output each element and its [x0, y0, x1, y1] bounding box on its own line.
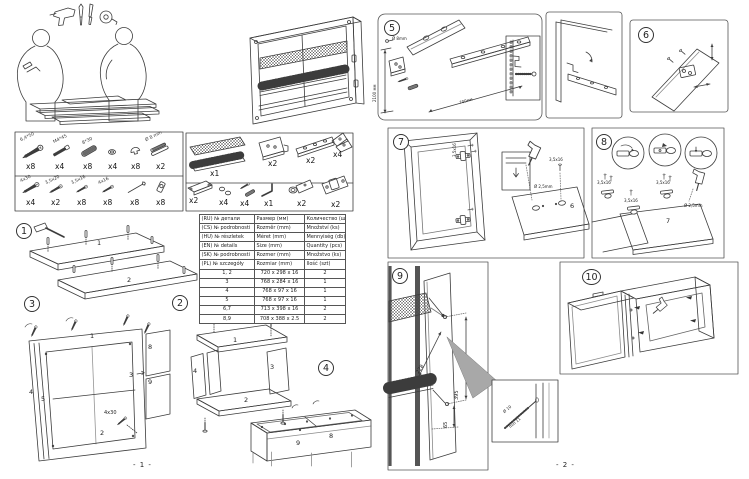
parts-table: (RU) № детали Размер (мм) Количество (шт… — [199, 214, 346, 324]
cell: 713 x 398 x 16 — [255, 305, 305, 314]
step-3-badge: 3 — [24, 296, 40, 312]
table-row: 3 768 x 284 x 16 1 — [200, 278, 346, 287]
cell: Množství (ks) — [305, 224, 346, 233]
part-label: 3 — [129, 372, 133, 379]
screw-size-label: 3,5x16 — [597, 181, 611, 185]
part-label: 4 — [193, 368, 197, 375]
qty-label: x8 — [130, 199, 139, 207]
cell: 2 — [305, 315, 346, 324]
step7-illustration — [388, 128, 589, 258]
step-1-badge: 1 — [16, 223, 32, 239]
screw-size-label: 3,5x16 — [624, 199, 638, 203]
step-5-badge: 5 — [384, 20, 400, 36]
cell: Množstvo (ks) — [305, 251, 346, 260]
table-header-row: (CS) № podrobnosti Rozměr (mm) Množství … — [200, 224, 346, 233]
qty-label: x8 — [156, 199, 165, 207]
screw-size-label: 3,5x16 — [549, 158, 563, 162]
cell: Ilość (szt) — [305, 260, 346, 269]
cell: 2 — [305, 269, 346, 278]
step1-illustration — [30, 223, 197, 299]
cell: 3 — [200, 278, 255, 287]
cell: 8,9 — [200, 315, 255, 324]
table-row: 6,7 713 x 398 x 16 2 — [200, 305, 346, 314]
step8-illustration — [592, 128, 724, 258]
qty-label: x2 — [297, 200, 306, 208]
cell: Quantity (pcs) — [305, 242, 346, 251]
hardware-screws-icons — [22, 142, 169, 194]
part-label: 8 — [329, 433, 333, 440]
qty-label: x8 — [83, 163, 92, 171]
part-label: 6 — [570, 203, 574, 210]
screw-size-label: 3,5x16 — [656, 181, 670, 185]
qty-label: x2 — [268, 160, 277, 168]
cell: (CS) № podrobnosti — [200, 224, 255, 233]
cell: Rozměr (mm) — [255, 224, 305, 233]
step-9-badge: 9 — [392, 268, 408, 284]
step-7-badge: 7 — [393, 134, 409, 150]
cell: Mennyiség (db) — [305, 233, 346, 242]
cell: 768 x 97 x 16 — [255, 296, 305, 305]
part-label: 2 — [127, 277, 131, 284]
height-dimension-label: 2100 мм — [373, 85, 377, 103]
cell: 1 — [305, 296, 346, 305]
step3-illustration — [25, 314, 170, 461]
cell: Rozmer (mm) — [255, 251, 305, 260]
line-art — [0, 0, 749, 479]
part-label: 1 — [90, 333, 94, 340]
table-header-row: (SK) № podrobnosti Rozmer (mm) Množstvo … — [200, 251, 346, 260]
table-row: 4 768 x 97 x 16 1 — [200, 287, 346, 296]
qty-label: x8 — [131, 163, 140, 171]
table-header-row: (RU) № детали Размер (мм) Количество (шт… — [200, 215, 346, 224]
cell: (EN) № details — [200, 242, 255, 251]
assembled-cabinet-illustration — [250, 17, 364, 124]
step-8-badge: 8 — [596, 134, 612, 150]
drill-diameter-label: Ø 8mm — [392, 37, 407, 41]
cell: Размер (мм) — [255, 215, 305, 224]
cell: (RU) № детали — [200, 215, 255, 224]
part-label: 4 — [29, 389, 33, 396]
rail-hook-detail — [546, 12, 622, 118]
table-row: 1, 2 720 x 298 x 16 2 — [200, 269, 346, 278]
cell: 768 x 97 x 16 — [255, 287, 305, 296]
cell: Rozmiar (mm) — [255, 260, 305, 269]
cell: 6,7 — [200, 305, 255, 314]
crop-marks — [253, 452, 352, 467]
boards-stack — [30, 96, 159, 125]
qty-label: x4 — [55, 163, 64, 171]
table-header-row: (PL) № szczegóły Rozmiar (mm) Ilość (szt… — [200, 260, 346, 269]
qty-label: x4 — [26, 199, 35, 207]
table-header-row: (HU) № részletek Méret (mm) Mennyiség (d… — [200, 233, 346, 242]
height-dimension-label: 395 — [455, 390, 460, 400]
qty-label: x4 — [240, 200, 249, 208]
table-row: 5 768 x 97 x 16 1 — [200, 296, 346, 305]
step4-illustration — [251, 401, 371, 461]
qty-label: x2 — [156, 163, 165, 171]
tools-icons — [50, 4, 117, 26]
step-10-badge: 10 — [582, 269, 601, 285]
screw-size-label: 3,5x16 — [453, 143, 457, 157]
bottom-dimension-label: 65 — [444, 422, 449, 428]
cell: 1 — [305, 287, 346, 296]
cell: 720 x 298 x 16 — [255, 269, 305, 278]
qty-label: x2 — [331, 201, 340, 209]
part-label: 7 — [666, 218, 670, 225]
cell: Size (mm) — [255, 242, 305, 251]
cell: (PL) № szczegóły — [200, 260, 255, 269]
qty-label: x4 — [219, 199, 228, 207]
cell: 768 x 284 x 16 — [255, 278, 305, 287]
qty-label: x8 — [26, 163, 35, 171]
cell: 1 — [305, 278, 346, 287]
qty-label: x1 — [210, 170, 219, 178]
step-6-badge: 6 — [638, 27, 654, 43]
page-number-right: - 2 - — [556, 461, 575, 469]
predrill-label: Ø 2,5mm — [684, 204, 703, 208]
table-row: 8,9 708 x 388 x 2.5 2 — [200, 315, 346, 324]
part-label: 2 — [100, 430, 104, 437]
qty-label: x2 — [51, 199, 60, 207]
page-number-left: - 1 - — [133, 461, 152, 469]
cell: 1, 2 — [200, 269, 255, 278]
part-label: 9 — [148, 379, 152, 386]
cell: (SK) № podrobnosti — [200, 251, 255, 260]
cell: Méret (mm) — [255, 233, 305, 242]
cell: 4 — [200, 287, 255, 296]
part-label: 8 — [148, 344, 152, 351]
step-4-badge: 4 — [318, 360, 334, 376]
step2-illustration — [191, 311, 291, 432]
qty-label: x4 — [333, 151, 342, 159]
cell: 2 — [305, 305, 346, 314]
qty-label: x8 — [77, 199, 86, 207]
part-label: 1 — [97, 240, 101, 247]
step-2-badge: 2 — [172, 295, 188, 311]
predrill-label: Ø 2,5mm — [534, 185, 553, 189]
part-label: 5 — [41, 396, 45, 403]
qty-label: x2 — [189, 197, 198, 205]
cell: 5 — [200, 296, 255, 305]
qty-label: x1 — [264, 200, 273, 208]
cell: (HU) № részletek — [200, 233, 255, 242]
part-label: 9 — [296, 440, 300, 447]
cell: Количество (шт) — [305, 215, 346, 224]
qty-label: x8 — [103, 199, 112, 207]
part-label: 2 — [244, 397, 248, 404]
part-label: 1 — [233, 337, 237, 344]
table-header-row: (EN) № details Size (mm) Quantity (pcs) — [200, 242, 346, 251]
qty-label: x2 — [306, 157, 315, 165]
cell: 708 x 388 x 2.5 — [255, 315, 305, 324]
qty-label: x4 — [108, 163, 117, 171]
assembly-instruction-sheet: 1 2 3 4 5 6 7 8 9 10 6,4*50 M4*45 8*30 Ø… — [0, 0, 749, 479]
step9-illustration — [388, 262, 558, 470]
part-label: 3 — [270, 364, 274, 371]
screw-size-label: 4x30 — [104, 411, 117, 416]
